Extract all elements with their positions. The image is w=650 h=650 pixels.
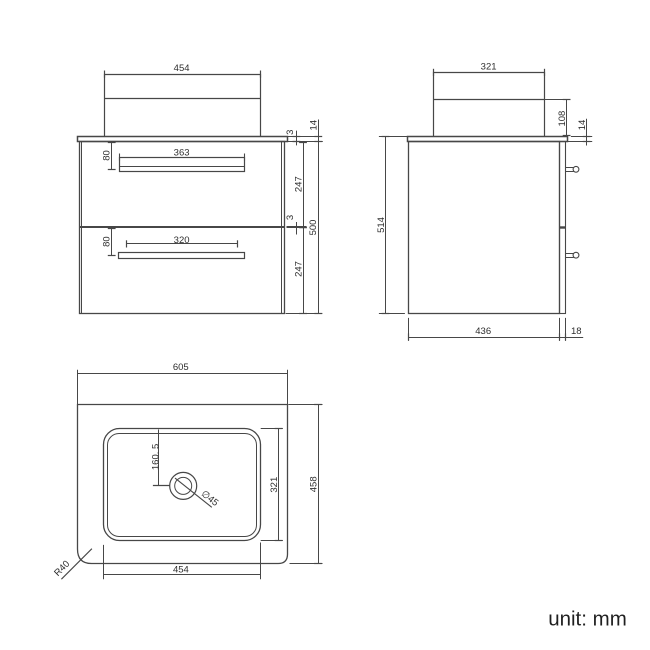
svg-text:321: 321 xyxy=(481,62,497,73)
svg-text:unit: mm: unit: mm xyxy=(548,608,627,631)
svg-text:18: 18 xyxy=(571,326,582,337)
svg-text:14: 14 xyxy=(309,120,320,131)
svg-text:320: 320 xyxy=(174,235,190,246)
svg-text:454: 454 xyxy=(174,63,190,74)
svg-text:454: 454 xyxy=(173,565,189,576)
svg-text:247: 247 xyxy=(294,176,305,192)
svg-text:108: 108 xyxy=(557,111,568,127)
svg-text:14: 14 xyxy=(577,120,588,131)
svg-text:363: 363 xyxy=(174,147,190,158)
svg-text:321: 321 xyxy=(269,477,280,493)
svg-text:3: 3 xyxy=(285,130,296,135)
svg-text:458: 458 xyxy=(308,476,319,492)
svg-text:80: 80 xyxy=(102,236,113,247)
svg-text:514: 514 xyxy=(376,217,387,233)
svg-text:80: 80 xyxy=(102,150,113,161)
svg-text:160. 5: 160. 5 xyxy=(150,444,161,470)
svg-text:247: 247 xyxy=(294,261,305,277)
svg-text:500: 500 xyxy=(308,220,319,236)
svg-text:605: 605 xyxy=(173,362,189,373)
svg-text:436: 436 xyxy=(475,326,491,337)
svg-text:3: 3 xyxy=(285,215,296,220)
